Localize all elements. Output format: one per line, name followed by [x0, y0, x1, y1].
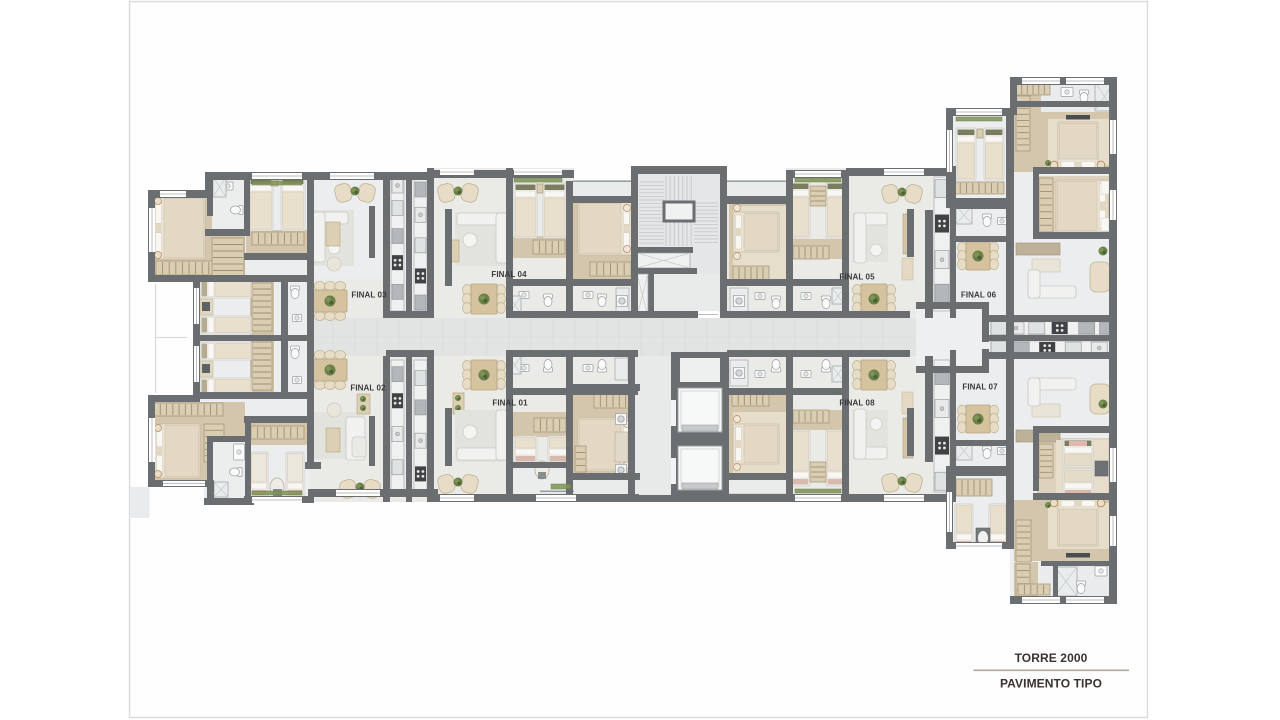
svg-text:FINAL 05: FINAL 05: [839, 273, 875, 282]
svg-text:FINAL 06: FINAL 06: [961, 291, 997, 300]
svg-text:FINAL 04: FINAL 04: [491, 270, 527, 279]
svg-text:FINAL 07: FINAL 07: [962, 383, 998, 392]
svg-text:FINAL 02: FINAL 02: [350, 384, 386, 393]
svg-text:PAVIMENTO TIPO: PAVIMENTO TIPO: [1000, 677, 1102, 691]
svg-text:FINAL 08: FINAL 08: [839, 399, 875, 408]
svg-text:FINAL 01: FINAL 01: [492, 399, 528, 408]
svg-text:TORRE 2000: TORRE 2000: [1015, 651, 1088, 665]
svg-text:FINAL 03: FINAL 03: [351, 291, 387, 300]
